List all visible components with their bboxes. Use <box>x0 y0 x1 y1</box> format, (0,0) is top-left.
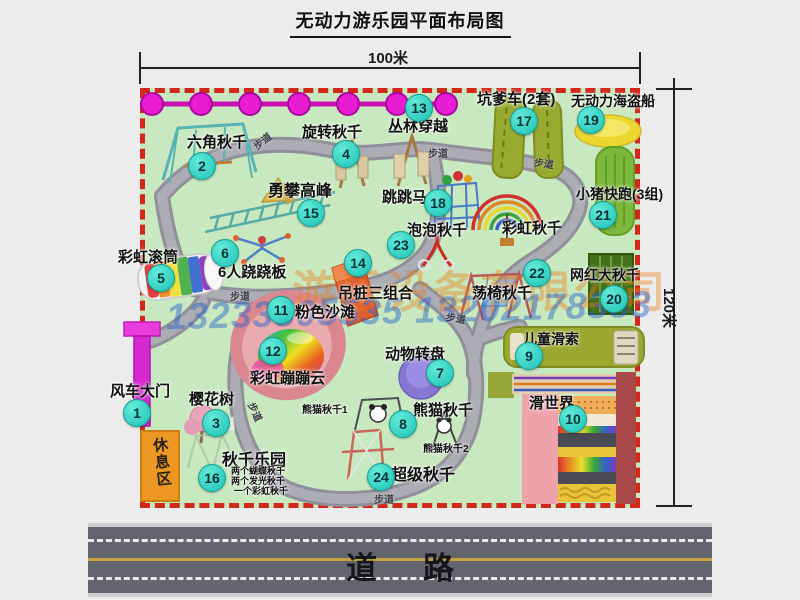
walkway-label-4: 步道 <box>245 399 267 423</box>
marker-badge-2: 2 <box>188 152 216 180</box>
walkway-label-6: 步道 <box>374 491 394 506</box>
road-lane-dash-top <box>88 539 712 542</box>
marker-label-5: 彩虹滚筒 <box>118 246 178 267</box>
marker-label-17: 坑爹车(2套) <box>477 88 555 109</box>
marker-label-12: 彩虹蹦蹦云 <box>250 367 325 388</box>
marker-badge-1: 1 <box>123 399 151 427</box>
marker-badge-17: 17 <box>510 107 538 135</box>
road-label: 道路 <box>88 543 712 588</box>
extra-label-1: 熊猫秋千1 <box>302 401 348 416</box>
marker-badge-21: 21 <box>589 201 617 229</box>
extra-label-2: 熊猫秋千2 <box>423 440 469 455</box>
marker-badge-5: 5 <box>147 264 175 292</box>
marker-label-4: 旋转秋千 <box>302 121 362 142</box>
marker-badge-18: 18 <box>424 189 452 217</box>
marker-badge-8: 8 <box>389 410 417 438</box>
marker-badge-13: 13 <box>405 94 433 122</box>
marker-badge-10: 10 <box>559 405 587 433</box>
marker-badge-15: 15 <box>297 199 325 227</box>
marker-layer: 风车大门1六角秋千2樱花树3旋转秋千4彩虹滚筒56人跷跷板6动物转盘7熊猫秋千8… <box>0 0 800 600</box>
marker-label-24: 超级秋千 <box>391 461 455 485</box>
walkway-label-2: 步道 <box>533 154 555 172</box>
marker-label-8: 熊猫秋千 <box>413 399 473 420</box>
marker-label-2: 六角秋千 <box>187 131 247 152</box>
walkway-label-3: 步道 <box>230 288 250 303</box>
marker-label-15: 勇攀高峰 <box>268 177 332 201</box>
marker-badge-11: 11 <box>267 296 295 324</box>
walkway-label-0: 步道 <box>250 128 275 152</box>
extra-label-5: 一个彩虹秋千 <box>234 484 288 497</box>
marker-label-1: 风车大门 <box>110 380 170 401</box>
marker-label-23: 泡泡秋千 <box>407 219 467 240</box>
marker-label-21: 小猪快跑(3组) <box>576 184 663 204</box>
walkway-label-1: 步道 <box>428 145 448 160</box>
marker-label-14: 吊桩三组合 <box>338 282 413 303</box>
marker-label-3: 樱花树 <box>189 388 234 409</box>
marker-badge-16: 16 <box>198 464 226 492</box>
extra-label-0: 彩虹秋千 <box>502 217 562 238</box>
marker-label-20: 网红大秋千 <box>570 265 640 285</box>
marker-label-22: 荡椅秋千 <box>472 282 532 303</box>
marker-badge-23: 23 <box>387 231 415 259</box>
marker-badge-3: 3 <box>202 409 230 437</box>
marker-badge-4: 4 <box>332 140 360 168</box>
marker-label-11: 粉色沙滩 <box>295 301 355 322</box>
marker-badge-22: 22 <box>523 259 551 287</box>
walkway-label-5: 步道 <box>445 308 467 326</box>
marker-badge-7: 7 <box>426 359 454 387</box>
road: 道路 <box>88 523 712 597</box>
marker-label-18: 跳跳马 <box>382 186 427 207</box>
screenshot-stage: 无动力游乐园平面布局图 100米 120米 <box>0 0 800 600</box>
marker-badge-6: 6 <box>211 239 239 267</box>
marker-badge-20: 20 <box>600 285 628 313</box>
marker-badge-9: 9 <box>515 342 543 370</box>
marker-badge-24: 24 <box>367 463 395 491</box>
marker-badge-14: 14 <box>344 249 372 277</box>
marker-badge-19: 19 <box>577 106 605 134</box>
marker-badge-12: 12 <box>259 337 287 365</box>
